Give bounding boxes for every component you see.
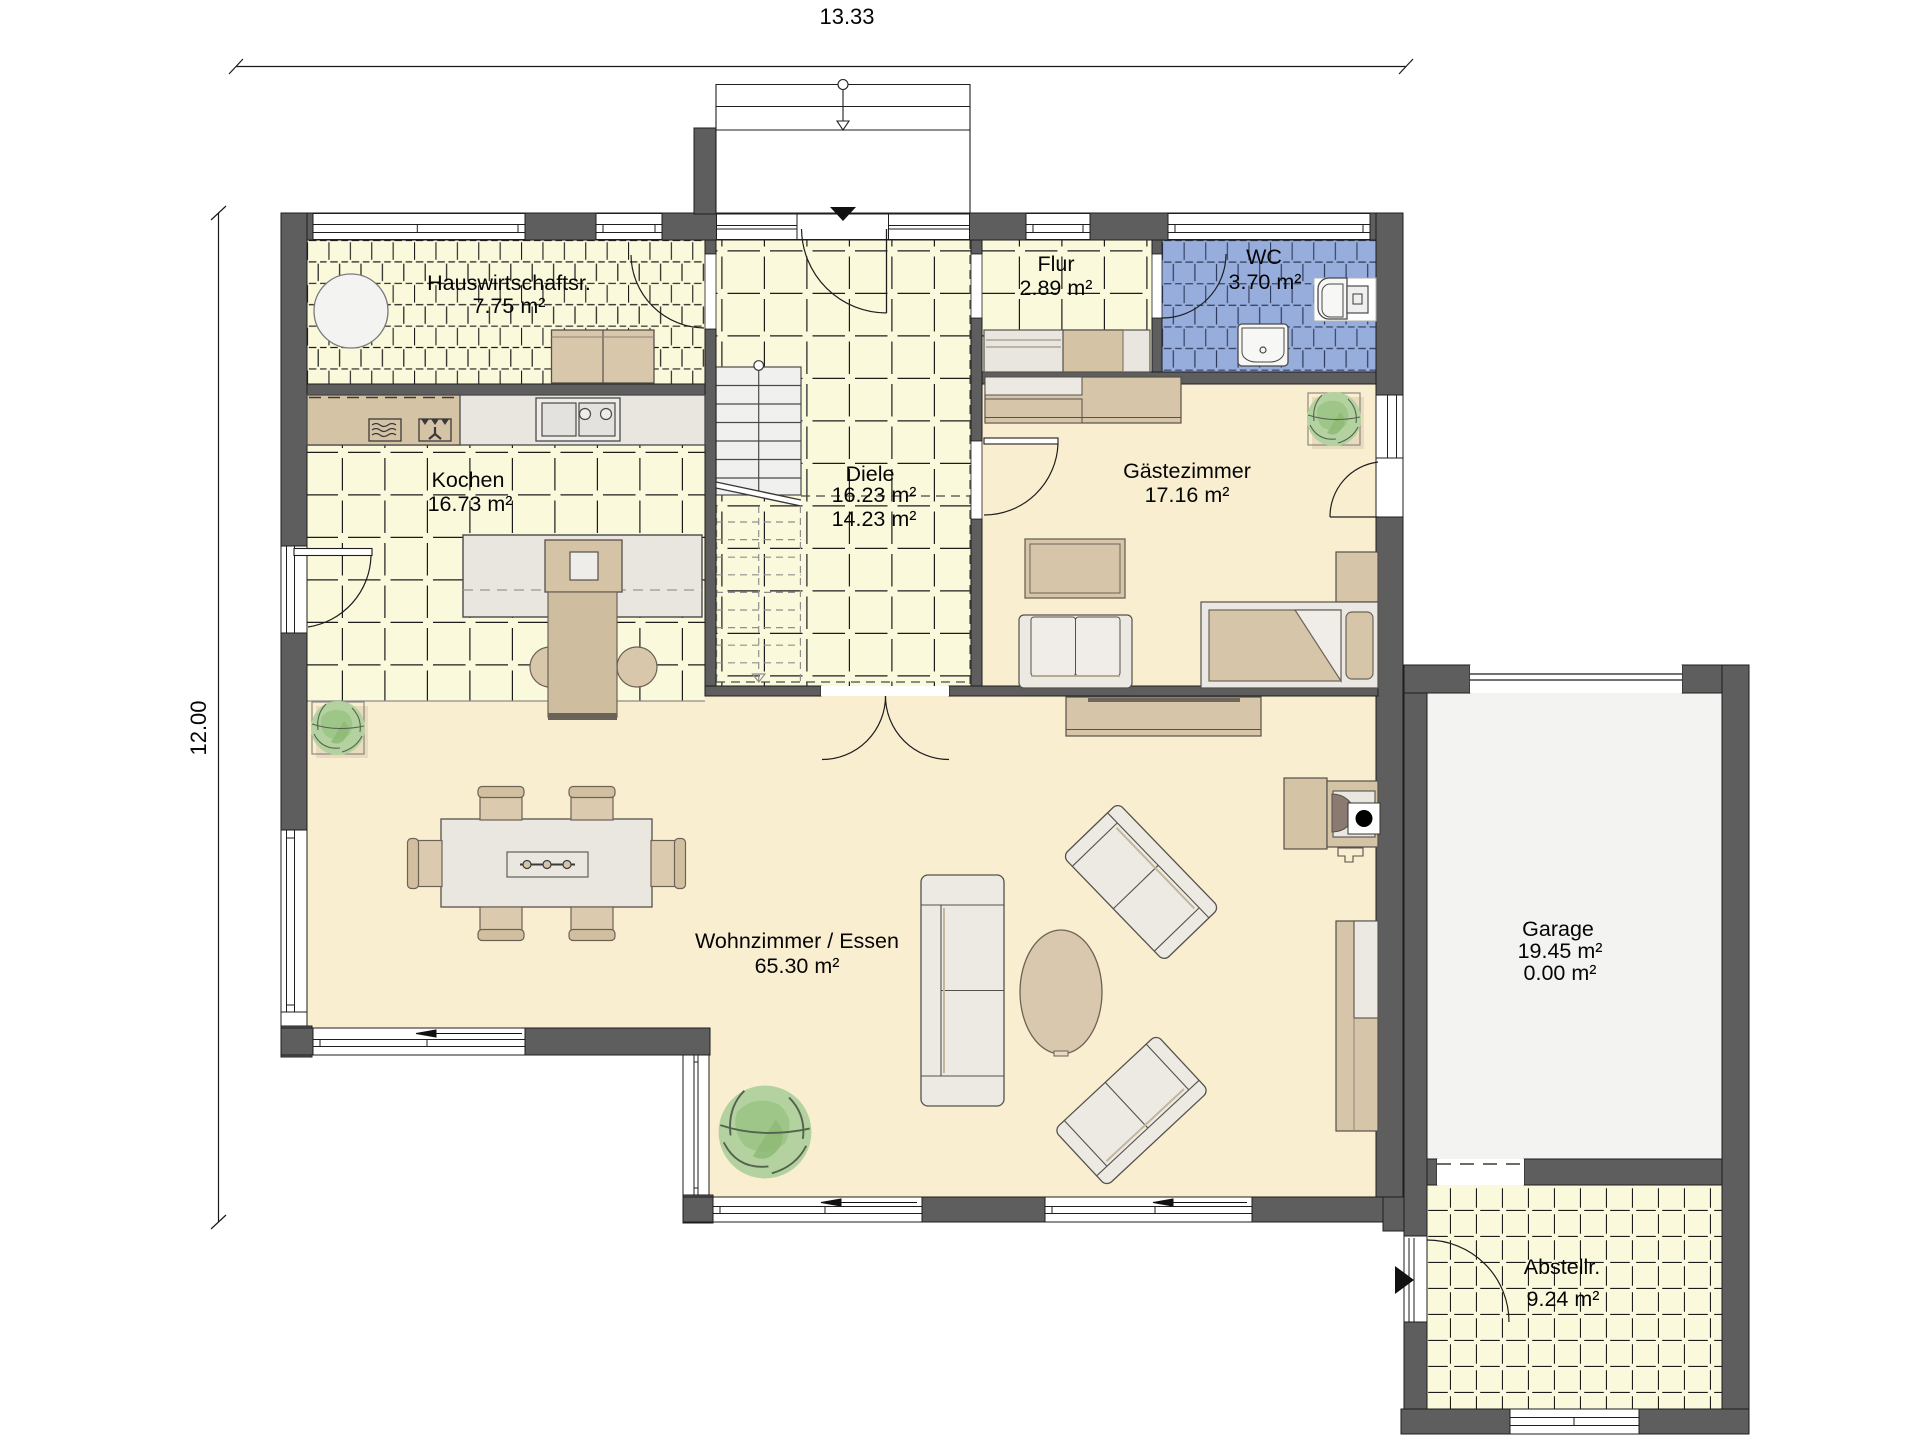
svg-text:Gästezimmer: Gästezimmer (1123, 459, 1251, 483)
svg-text:14.23 m²: 14.23 m² (832, 507, 917, 531)
svg-text:3.70 m²: 3.70 m² (1229, 270, 1302, 294)
svg-text:65.30 m²: 65.30 m² (755, 954, 840, 978)
svg-text:Kochen: Kochen (432, 468, 505, 492)
svg-text:17.16 m²: 17.16 m² (1145, 483, 1230, 507)
svg-text:Abstellr.: Abstellr. (1524, 1255, 1600, 1279)
svg-text:7.75 m²: 7.75 m² (473, 294, 546, 318)
svg-text:16.23 m²: 16.23 m² (832, 483, 917, 507)
svg-text:Hauswirtschaftsr.: Hauswirtschaftsr. (427, 271, 591, 295)
svg-text:Flur: Flur (1037, 252, 1074, 276)
svg-text:19.45 m²: 19.45 m² (1518, 939, 1603, 963)
svg-text:12.00: 12.00 (186, 700, 211, 755)
svg-text:WC: WC (1246, 245, 1282, 269)
svg-text:9.24 m²: 9.24 m² (1527, 1287, 1600, 1311)
svg-text:13.33: 13.33 (819, 4, 874, 29)
svg-text:2.89 m²: 2.89 m² (1020, 276, 1093, 300)
svg-text:Garage: Garage (1522, 917, 1594, 941)
svg-text:16.73 m²: 16.73 m² (428, 492, 513, 516)
svg-text:0.00 m²: 0.00 m² (1524, 961, 1597, 985)
svg-text:Wohnzimmer / Essen: Wohnzimmer / Essen (695, 929, 899, 953)
